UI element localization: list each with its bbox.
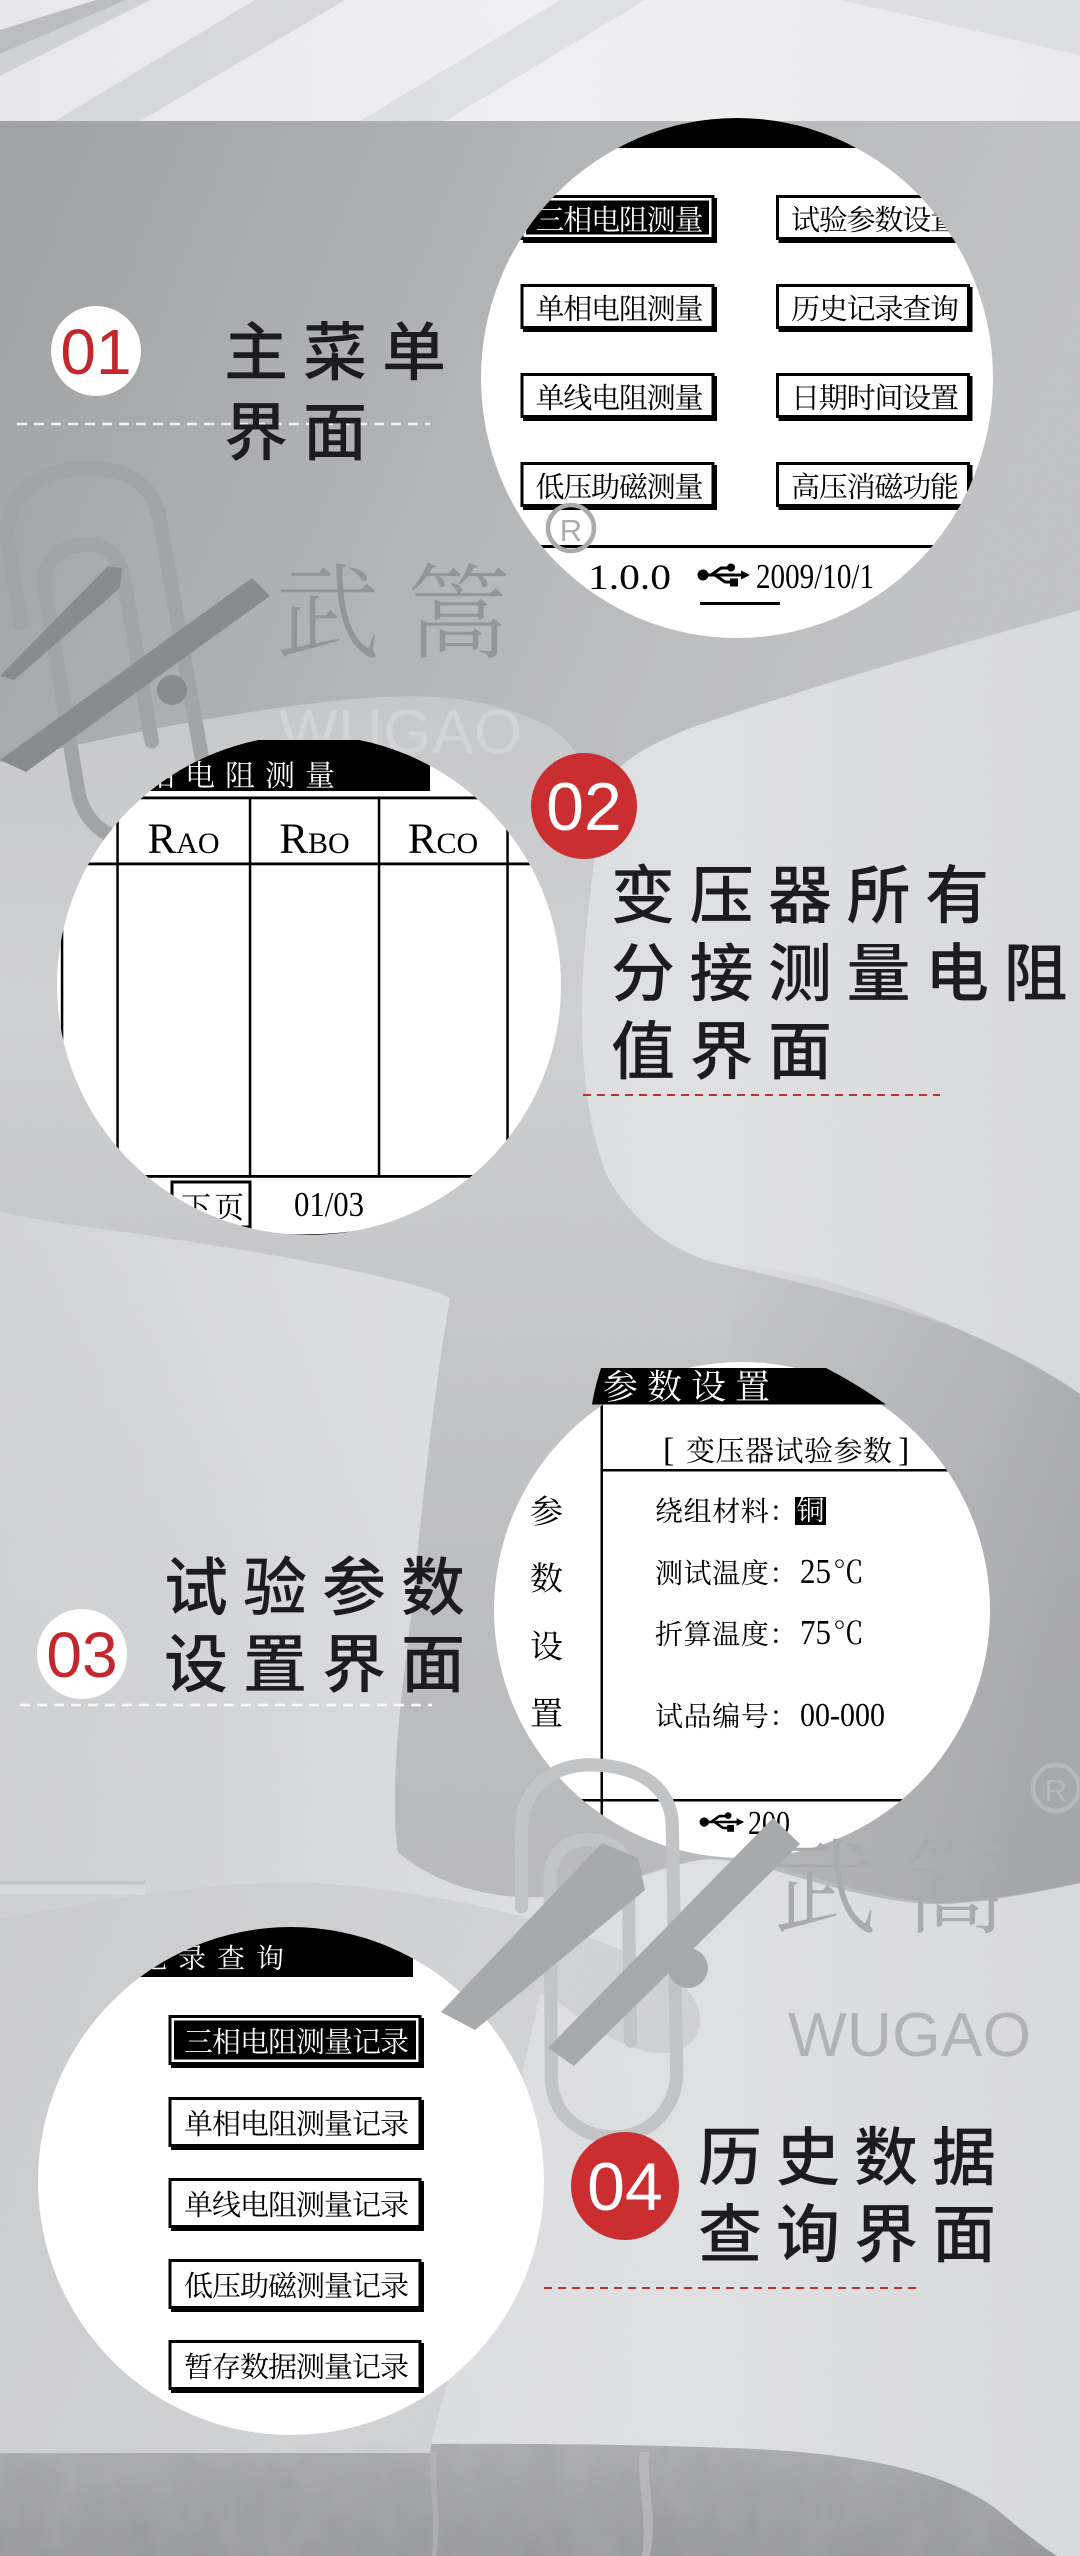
svg-text:R: R <box>560 513 582 548</box>
svg-text:01: 01 <box>60 316 131 388</box>
svg-text:2009/10/1: 2009/10/1 <box>756 557 874 596</box>
svg-text:02: 02 <box>546 769 622 845</box>
svg-text:00-000: 00-000 <box>800 1697 885 1734</box>
svg-text:01/03: 01/03 <box>294 1185 364 1224</box>
svg-text:1.0.0: 1.0.0 <box>588 557 671 597</box>
svg-text:25: 25 <box>800 1552 831 1591</box>
svg-text:R: R <box>1045 1773 1067 1808</box>
svg-text:]: ] <box>898 1432 909 1469</box>
svg-text:04: 04 <box>587 2149 663 2225</box>
svg-text:WUGAO: WUGAO <box>788 2001 1032 2070</box>
svg-text:75: 75 <box>800 1613 831 1652</box>
svg-text:[: [ <box>663 1432 674 1469</box>
svg-text:03: 03 <box>46 1619 117 1691</box>
